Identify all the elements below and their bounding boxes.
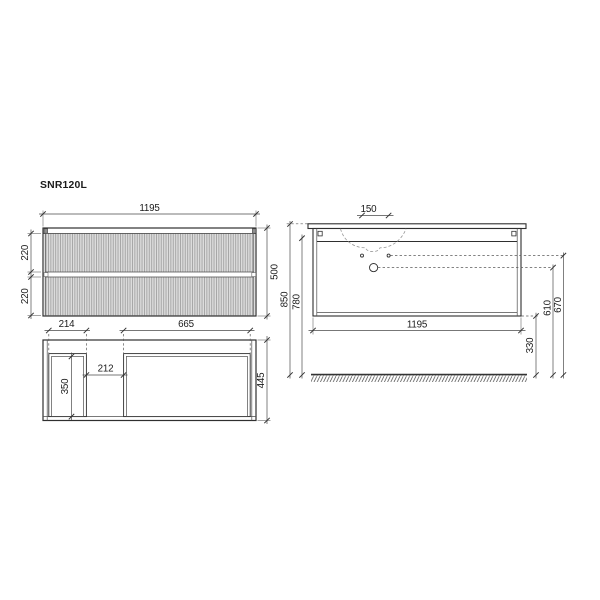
front-height-label: 500 [270, 263, 281, 279]
side-bracket-left [318, 231, 322, 236]
technical-drawing-canvas: SNR120L 1195 220 [0, 0, 600, 600]
front-top-drawer-fluted [45, 234, 254, 273]
side-tap-height-label: 670 [553, 296, 564, 312]
side-bracket-right [512, 231, 516, 236]
tap-hole-left [361, 254, 364, 257]
side-outlet-height-label: 610 [543, 299, 554, 315]
side-overall-height-label: 850 [279, 291, 290, 307]
outlet-hole [370, 264, 378, 272]
front-bottom-drawer-label: 220 [20, 288, 31, 304]
plan-gap-label: 212 [98, 364, 114, 375]
side-clearance-label: 330 [525, 337, 536, 353]
floor-hatch [311, 375, 527, 382]
front-corner-block-left [44, 229, 48, 233]
front-top-drawer-label: 220 [20, 244, 31, 260]
front-width-label: 1195 [139, 203, 160, 214]
front-corner-block-right [252, 229, 256, 233]
plan-cabinet-outline [43, 340, 256, 421]
plan-depth-label: 445 [256, 372, 267, 388]
side-countertop [308, 224, 526, 229]
tap-hole-right [387, 254, 390, 257]
side-tap-spacing-label: 150 [361, 204, 377, 215]
floor [311, 375, 527, 382]
plan-left-width-label: 214 [59, 319, 75, 330]
plan-right-width-label: 665 [178, 319, 194, 330]
model-code-title: SNR120L [40, 180, 87, 191]
front-bottom-drawer-fluted [45, 277, 254, 316]
front-gap-notch-right [252, 273, 256, 277]
side-underside-height-label: 780 [292, 293, 303, 309]
front-gap-notch-left [44, 273, 48, 277]
side-width-label: 1195 [407, 320, 428, 331]
plan-compartment-depth-label: 350 [60, 378, 71, 394]
